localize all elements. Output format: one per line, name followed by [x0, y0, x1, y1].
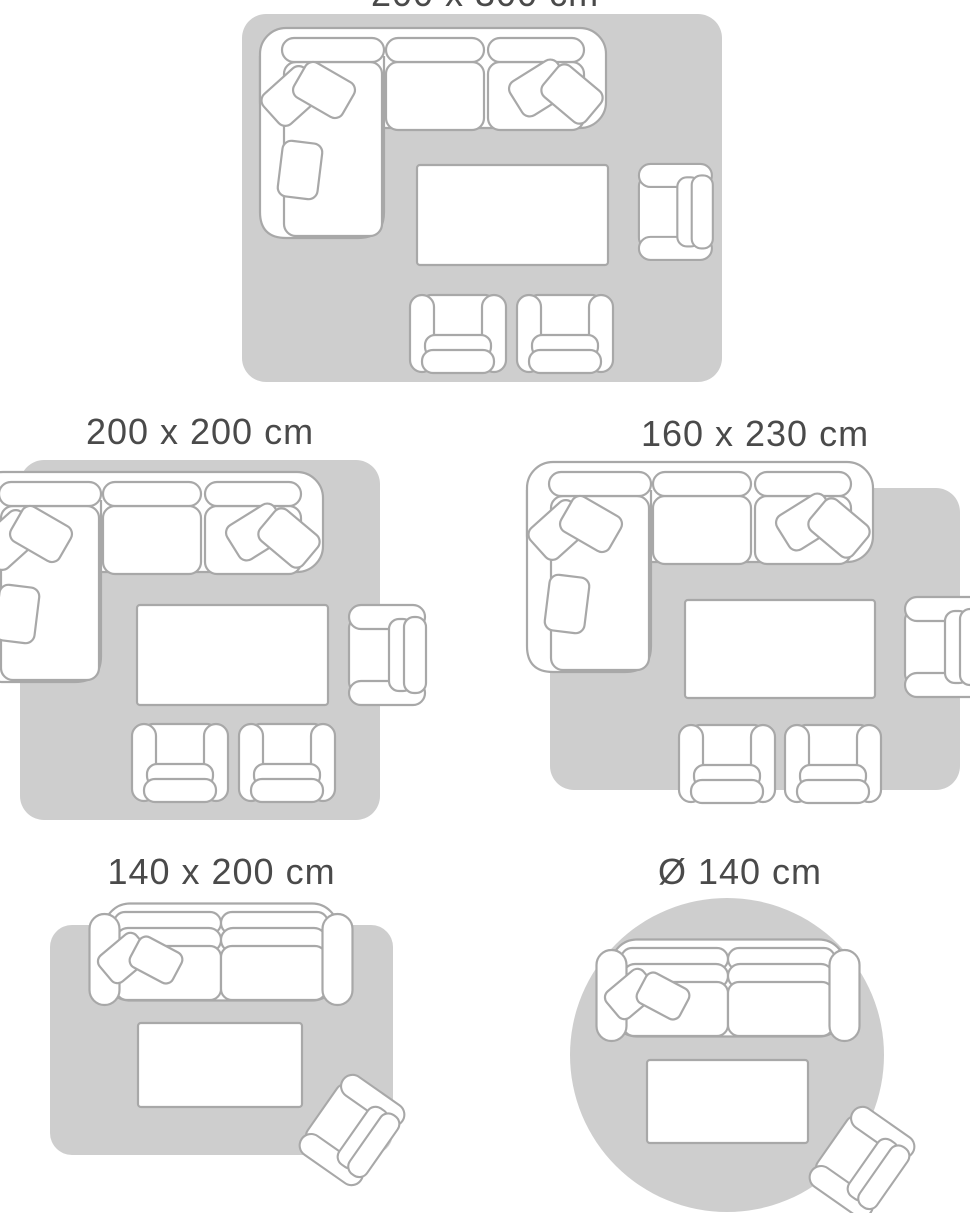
coffee-table-icon [137, 605, 328, 705]
size-label-160x230: 160 x 230 cm [550, 415, 960, 453]
rug-size-guide: 200 x 300 cm 200 x 200 cm 160 x 230 cm 1… [0, 0, 970, 1213]
layout-diagram-200x200 [0, 450, 440, 820]
layout-diagram-200x300 [235, 0, 735, 392]
coffee-table-icon [417, 165, 608, 265]
coffee-table-icon [647, 1060, 808, 1143]
layout-diagram-d140 [540, 895, 970, 1213]
layout-diagram-160x230 [505, 450, 970, 820]
size-label-d140: Ø 140 cm [550, 853, 930, 891]
layout-diagram-140x200 [30, 895, 450, 1213]
size-label-200x200: 200 x 200 cm [20, 413, 380, 451]
coffee-table-icon [685, 600, 875, 698]
coffee-table-icon [138, 1023, 302, 1107]
size-label-140x200: 140 x 200 cm [50, 853, 393, 891]
